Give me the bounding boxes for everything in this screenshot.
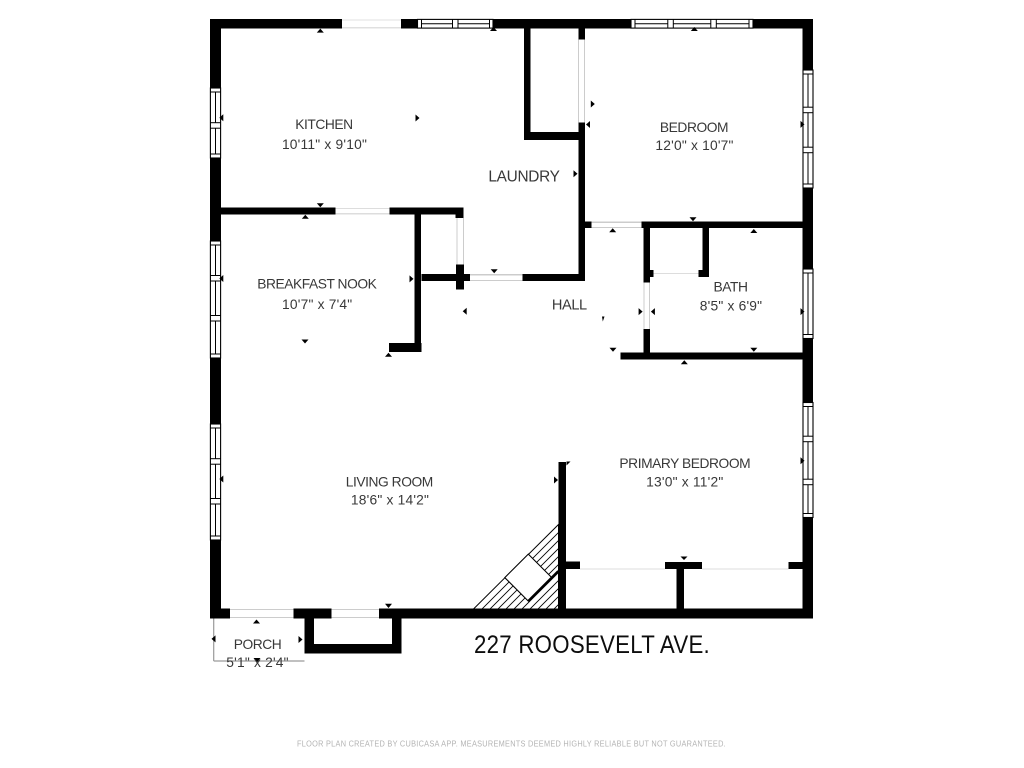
svg-text:BREAKFAST NOOK: BREAKFAST NOOK (257, 276, 377, 291)
svg-text:BEDROOM: BEDROOM (660, 120, 728, 135)
svg-text:LAUNDRY: LAUNDRY (488, 168, 559, 185)
svg-text:LIVING ROOM: LIVING ROOM (346, 474, 433, 489)
svg-text:227 ROOSEVELT AVE.: 227 ROOSEVELT AVE. (474, 631, 710, 659)
svg-text:5'1" x 2'4": 5'1" x 2'4" (226, 655, 289, 670)
svg-text:13'0" x 11'2": 13'0" x 11'2" (646, 474, 723, 489)
svg-text:PRIMARY BEDROOM: PRIMARY BEDROOM (619, 456, 750, 471)
svg-text:BATH: BATH (714, 280, 748, 295)
svg-text:10'11" x 9'10": 10'11" x 9'10" (282, 137, 367, 152)
svg-text:10'7" x 7'4": 10'7" x 7'4" (282, 297, 352, 312)
svg-text:PORCH: PORCH (234, 637, 282, 652)
svg-text:18'6" x 14'2": 18'6" x 14'2" (351, 492, 429, 507)
svg-text:HALL: HALL (552, 297, 587, 313)
svg-text:FLOOR PLAN CREATED BY CUBICASA: FLOOR PLAN CREATED BY CUBICASA APP. MEAS… (297, 739, 726, 749)
svg-text:KITCHEN: KITCHEN (295, 117, 352, 132)
svg-text:8'5" x 6'9": 8'5" x 6'9" (700, 298, 763, 313)
svg-text:12'0" x 10'7": 12'0" x 10'7" (655, 138, 733, 153)
